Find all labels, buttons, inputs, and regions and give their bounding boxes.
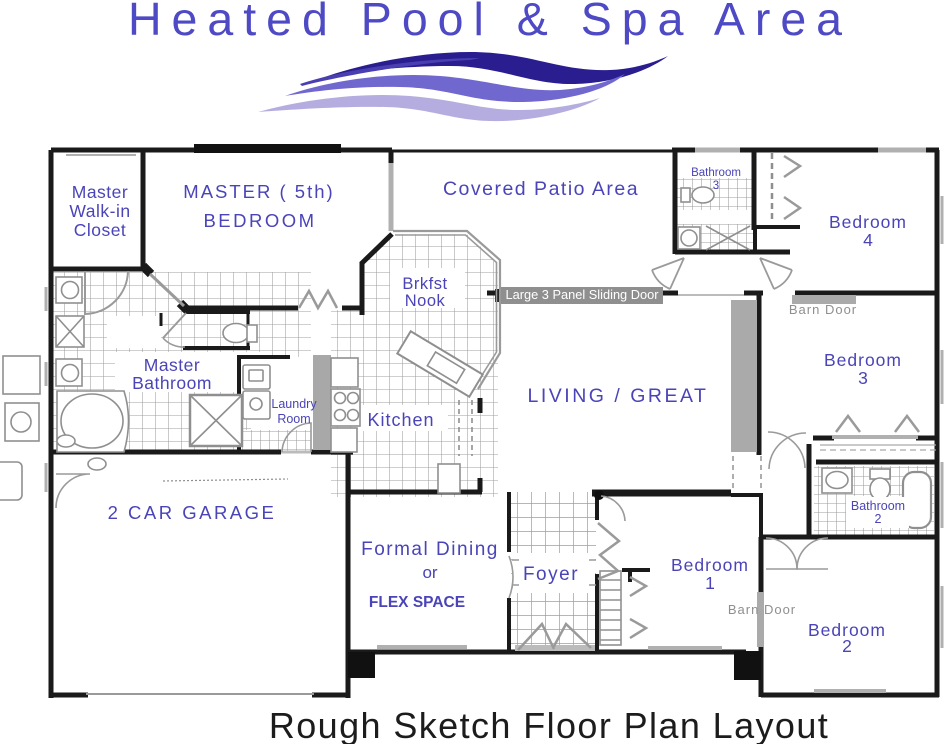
svg-text:Covered Patio Area: Covered Patio Area xyxy=(443,178,639,200)
svg-text:4: 4 xyxy=(863,230,873,250)
svg-text:Master: Master xyxy=(72,182,128,202)
svg-text:3: 3 xyxy=(713,180,719,192)
svg-text:2: 2 xyxy=(875,512,882,526)
svg-text:Closet: Closet xyxy=(74,220,127,240)
svg-text:Walk-in: Walk-in xyxy=(69,201,130,221)
svg-text:Formal Dining: Formal Dining xyxy=(361,539,499,560)
svg-text:Kitchen: Kitchen xyxy=(367,410,434,430)
svg-text:Room: Room xyxy=(277,412,310,426)
svg-text:Large 3 Panel Sliding Door: Large 3 Panel Sliding Door xyxy=(506,287,660,302)
svg-text:BEDROOM: BEDROOM xyxy=(203,210,316,231)
svg-text:2: 2 xyxy=(842,636,852,656)
svg-text:Nook: Nook xyxy=(405,292,446,310)
svg-text:1: 1 xyxy=(705,573,715,593)
svg-text:Laundry: Laundry xyxy=(271,397,317,411)
svg-text:Bathroom: Bathroom xyxy=(851,499,905,513)
svg-text:Bedroom: Bedroom xyxy=(829,212,907,232)
svg-text:2 CAR GARAGE: 2 CAR GARAGE xyxy=(108,502,277,523)
svg-text:Bathroom: Bathroom xyxy=(691,167,741,179)
svg-text:Bathroom: Bathroom xyxy=(132,373,212,393)
svg-text:Master: Master xyxy=(144,355,200,375)
svg-text:3: 3 xyxy=(858,368,868,388)
svg-text:Barn Door: Barn Door xyxy=(789,302,857,317)
svg-text:Rough Sketch Floor Plan Layout: Rough Sketch Floor Plan Layout xyxy=(269,705,829,744)
svg-text:Brkfst: Brkfst xyxy=(402,275,447,293)
svg-text:LIVING / GREAT: LIVING / GREAT xyxy=(528,385,709,407)
svg-text:or: or xyxy=(422,563,437,582)
svg-text:MASTER ( 5th): MASTER ( 5th) xyxy=(183,181,334,202)
svg-text:Foyer: Foyer xyxy=(523,564,579,585)
svg-text:Barn Door: Barn Door xyxy=(728,602,796,617)
svg-text:Bedroom: Bedroom xyxy=(824,350,902,370)
svg-text:Bedroom: Bedroom xyxy=(671,555,749,575)
svg-text:Heated Pool & Spa Area: Heated Pool & Spa Area xyxy=(128,0,852,45)
svg-text:FLEX SPACE: FLEX SPACE xyxy=(369,594,465,611)
